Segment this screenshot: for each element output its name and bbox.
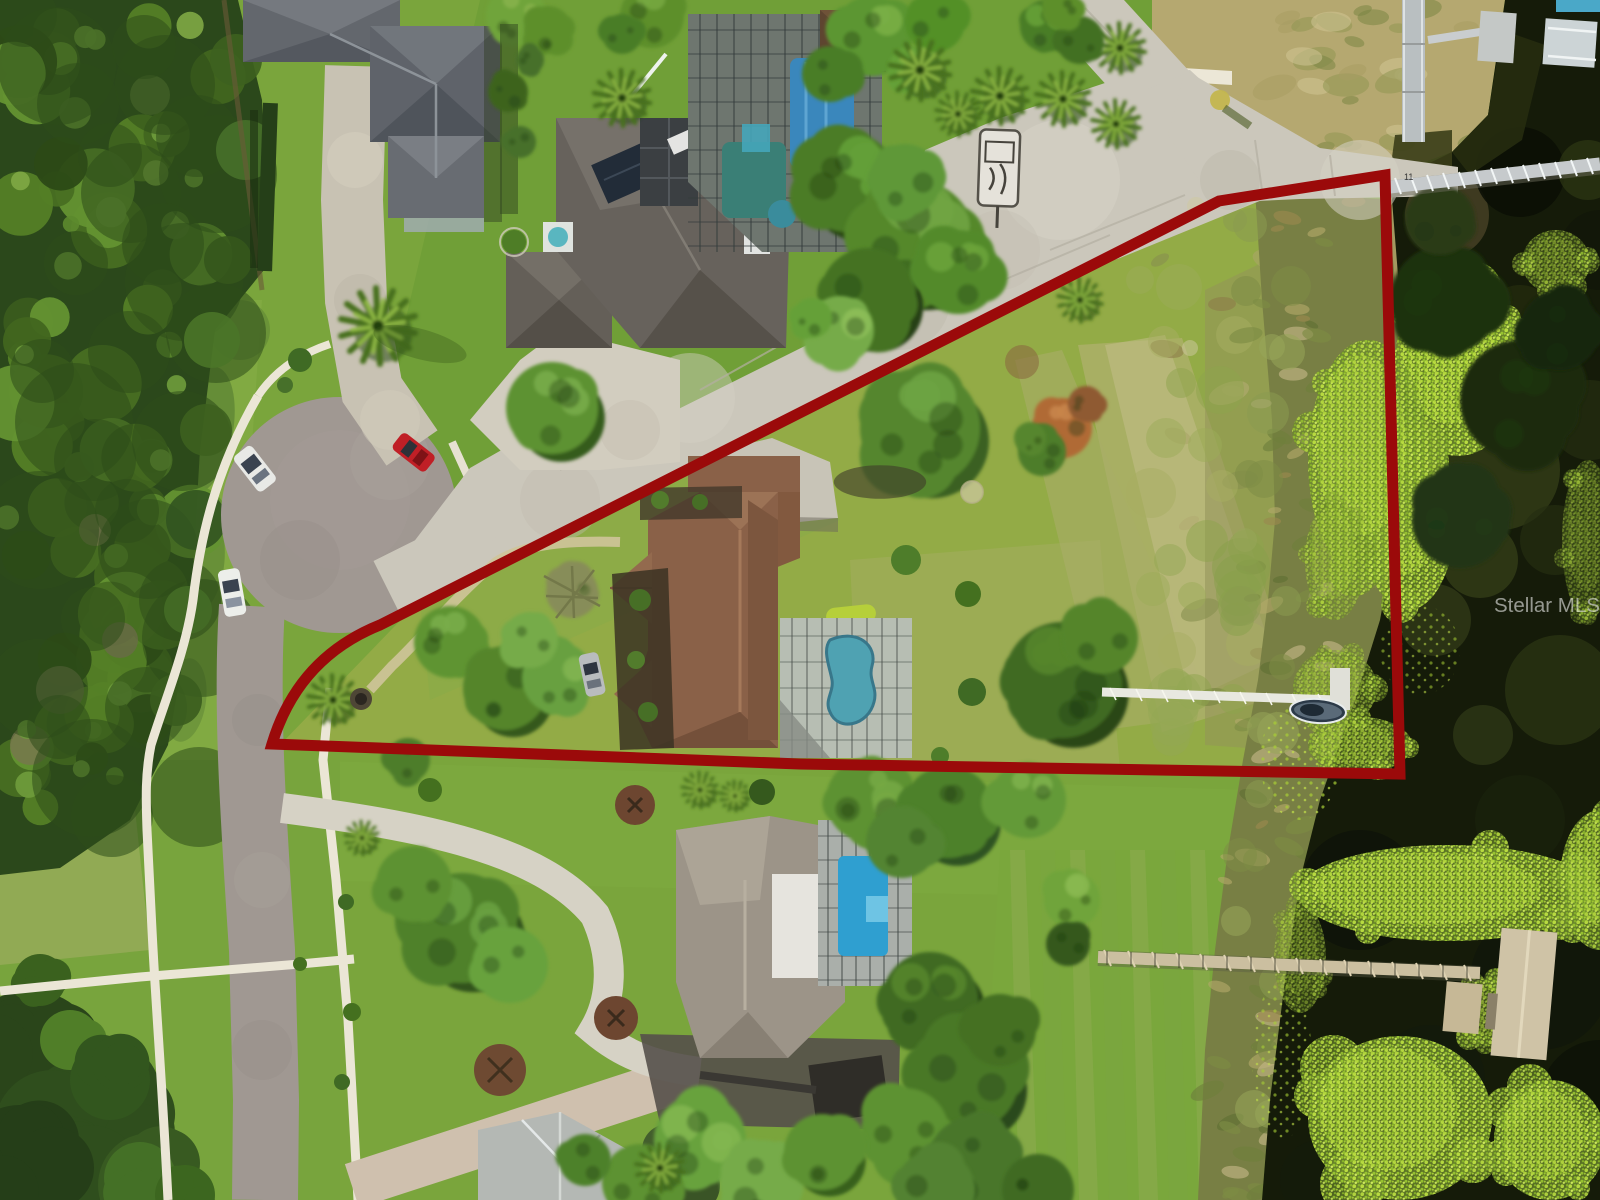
svg-text:Stellar MLS: Stellar MLS: [1494, 594, 1600, 617]
svg-text:11: 11: [1404, 172, 1413, 182]
